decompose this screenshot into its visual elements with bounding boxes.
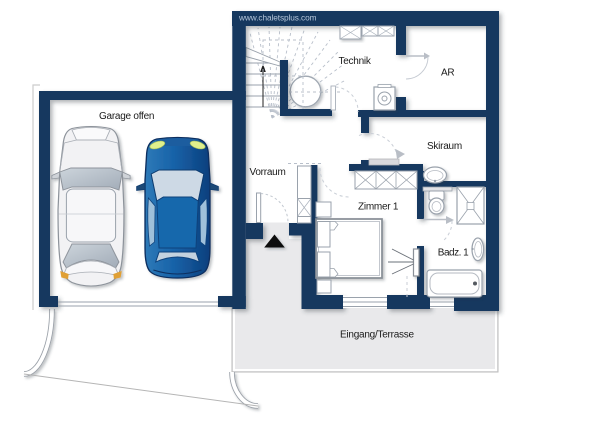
svg-text:Eingang/Terrasse: Eingang/Terrasse — [340, 330, 415, 341]
svg-text:Technik: Technik — [339, 56, 372, 67]
svg-text:www.chaletsplus.com: www.chaletsplus.com — [238, 12, 317, 22]
svg-text:Skiraum: Skiraum — [427, 141, 462, 152]
svg-text:Garage offen: Garage offen — [99, 111, 154, 122]
svg-text:Badz. 1: Badz. 1 — [438, 248, 469, 259]
svg-text:AR: AR — [441, 68, 454, 79]
svg-text:Vorraum: Vorraum — [250, 167, 286, 178]
svg-text:Zimmer 1: Zimmer 1 — [358, 202, 399, 213]
